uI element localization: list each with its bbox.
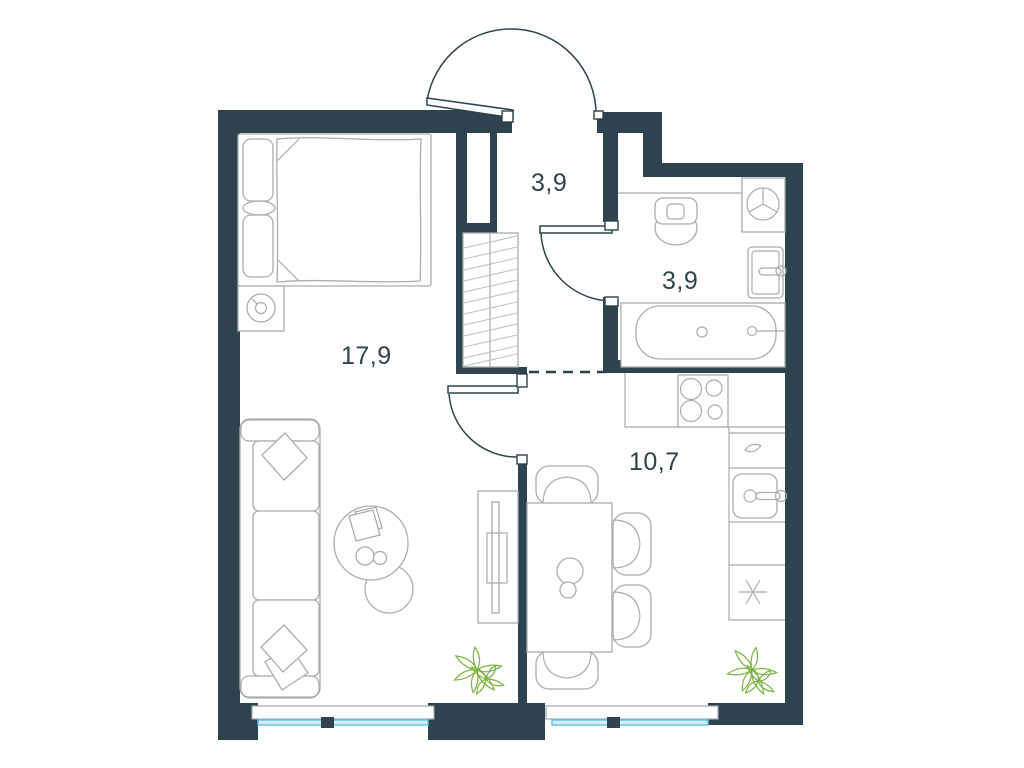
jamb-bathroom-top [605, 221, 618, 230]
window-left-mullion [321, 717, 334, 728]
window-right-glass [552, 720, 708, 725]
kitchen-area-label: 10,7 [629, 448, 680, 476]
wall-top-left [218, 110, 512, 133]
wall-step-block [643, 133, 662, 163]
hallway-area-label: 3,9 [531, 169, 567, 197]
jamb-living-bottom [517, 455, 527, 464]
bathroom-door-arc [541, 232, 613, 301]
kitchen-fixtures [625, 373, 787, 620]
fridge-snowflake-icon [739, 580, 767, 604]
living-door-leaf [448, 386, 518, 393]
table-plate-large [557, 558, 583, 584]
window-right-sill [546, 706, 718, 719]
wall-bottom-middle-pier [428, 703, 545, 740]
plant-right-icon [723, 642, 784, 700]
cup-large [356, 547, 374, 565]
counter-handle-icon [745, 444, 761, 452]
window-right-mullion [607, 717, 620, 728]
wardrobe [463, 233, 518, 367]
wall-door-header [456, 367, 527, 374]
wall-right [785, 163, 803, 725]
bathroom-area-label: 3,9 [662, 267, 698, 295]
dining-chair-bottom [536, 651, 598, 689]
nightstand [238, 286, 284, 331]
dining-chair-top [536, 466, 598, 504]
bed-pillow-top [243, 139, 273, 201]
floor-plan-svg: 17,9 3,9 3,9 10,7 [0, 0, 1024, 768]
wall-left [218, 110, 240, 740]
bed-pillow-bottom [243, 215, 273, 277]
table-plate-small [560, 582, 576, 598]
entrance-door-arc [427, 29, 596, 113]
bed-pillow-roll [243, 201, 275, 215]
toilet-tank [655, 198, 697, 224]
bed-blanket [277, 138, 421, 282]
bathtub-basin [636, 306, 776, 359]
wall-bathroom-left-upper [603, 133, 618, 222]
floor-plan-canvas: 17,9 3,9 3,9 10,7 [0, 0, 1024, 768]
sofa-seat-2 [253, 511, 319, 600]
jamb-entrance-right [594, 111, 603, 119]
wall-room-divider [518, 464, 527, 708]
bathroom-fixtures [618, 177, 786, 367]
coffee-table [334, 506, 413, 613]
dining-chair-right-1 [613, 513, 651, 575]
living-room-area-label: 17,9 [341, 342, 392, 370]
jamb-bathroom-bottom [605, 297, 618, 306]
tv-screen [492, 502, 499, 613]
wall-bottom-right-block [708, 703, 803, 725]
window-left-glass [258, 720, 428, 725]
wall-duct-cap [456, 223, 497, 233]
tv-stand [478, 491, 518, 623]
bathroom-door-leaf [540, 226, 612, 233]
dining-chair-right-2 [613, 585, 651, 647]
jamb-living-top [517, 374, 527, 387]
dining-set [527, 466, 651, 689]
wall-bathroom-top [643, 163, 803, 177]
wall-top-right [597, 112, 662, 133]
wall-duct-right [490, 133, 497, 223]
bed [238, 134, 431, 286]
living-door-arc [449, 394, 518, 457]
plant-left-icon [453, 647, 504, 694]
window-left-sill [252, 706, 434, 719]
cup-small [374, 552, 387, 565]
sofa [240, 419, 320, 698]
doors [427, 29, 618, 464]
jamb-entrance-left [502, 111, 513, 122]
